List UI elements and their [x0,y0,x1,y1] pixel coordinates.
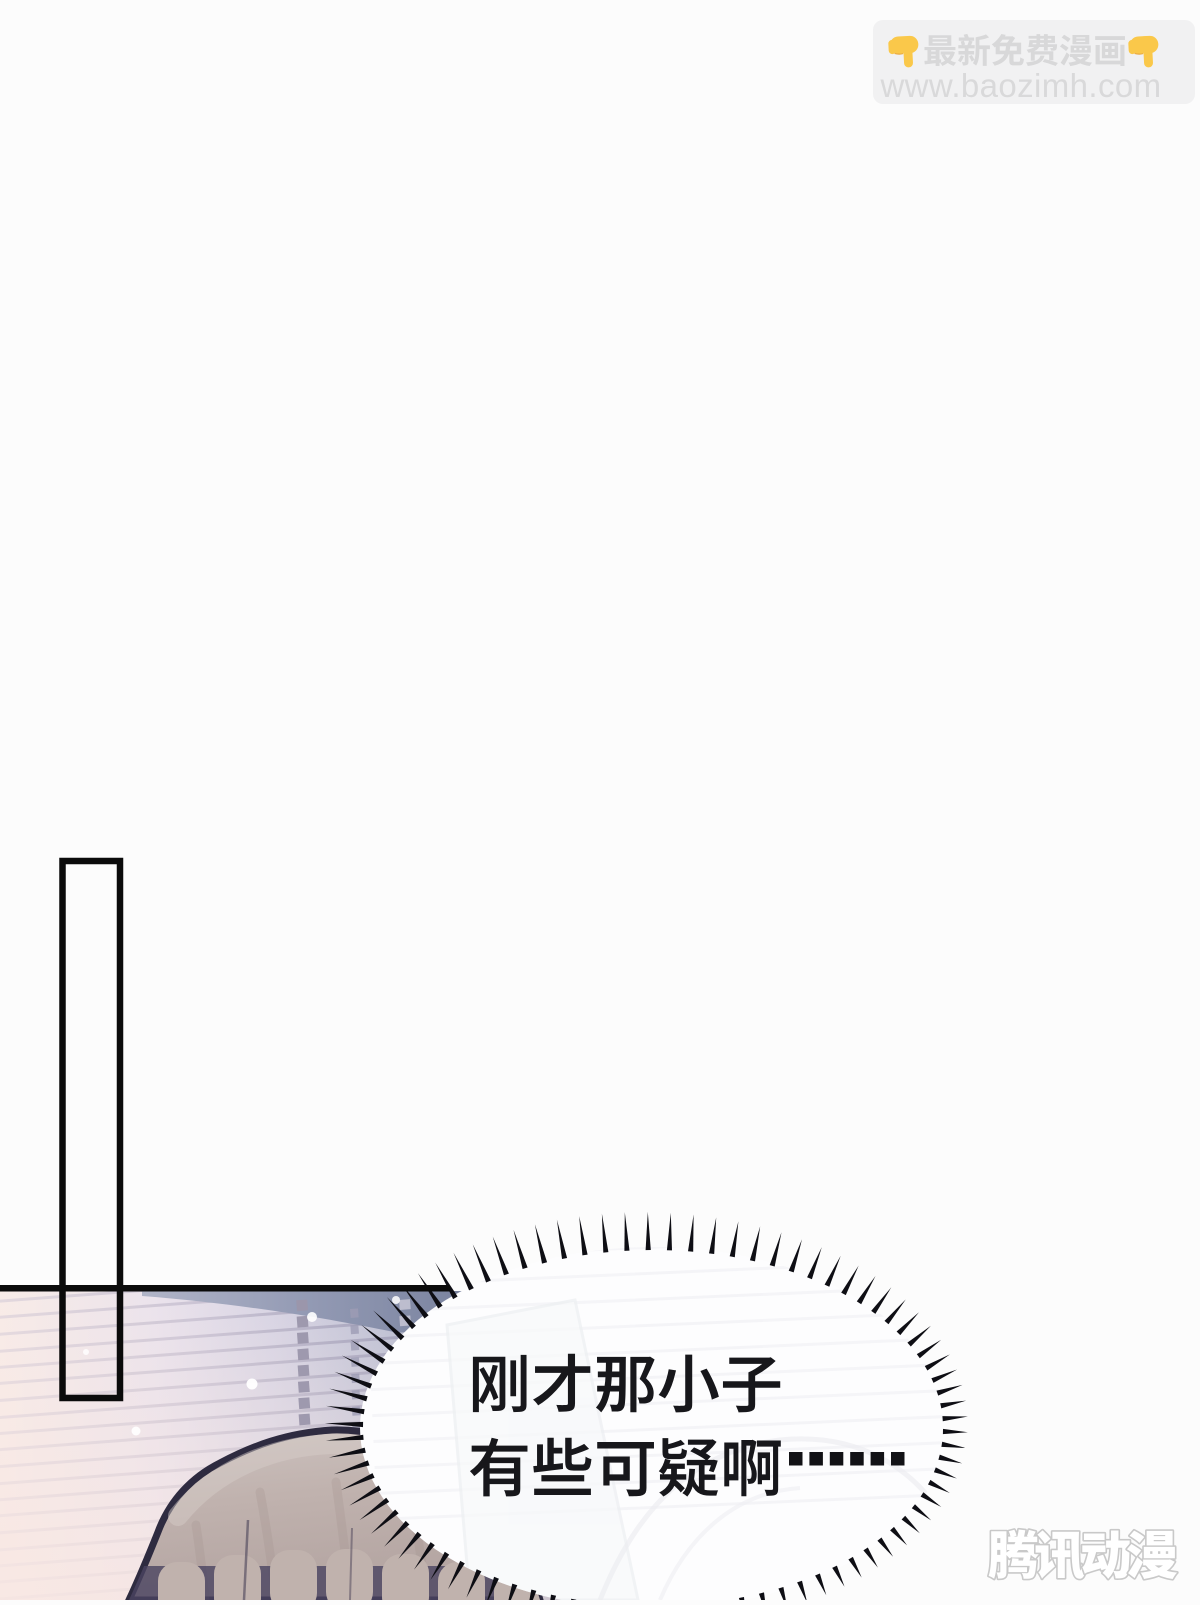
svg-text:www.baozimh.com: www.baozimh.com [879,67,1161,104]
